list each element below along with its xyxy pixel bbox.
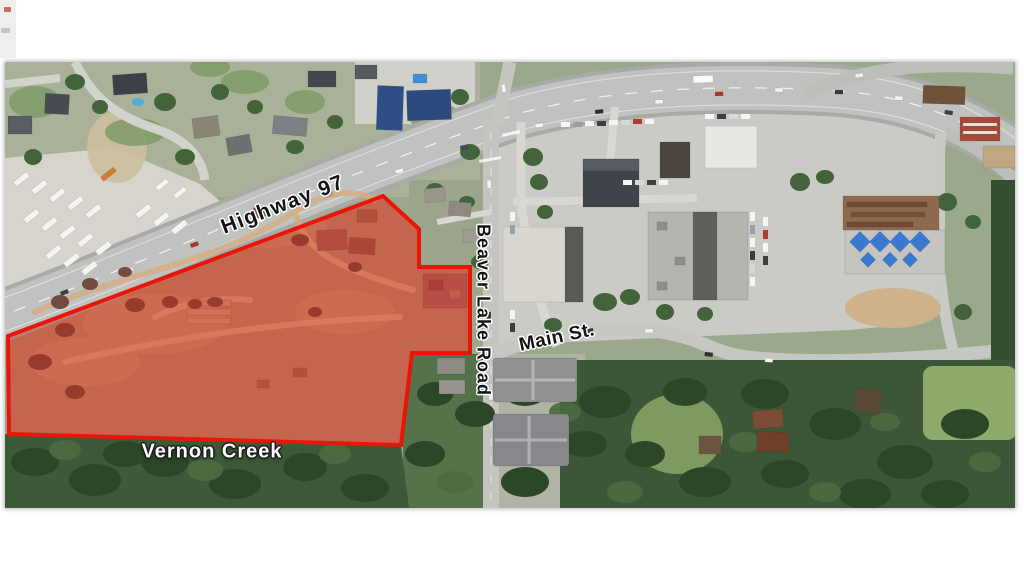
- map-art: [5, 62, 1015, 508]
- artifact-speck: [4, 7, 11, 12]
- artifact-speck: [1, 28, 10, 33]
- page: { "page": { "type": "aerial-map-figure",…: [0, 0, 1024, 576]
- satellite-map: Highway 97 Beaver Lake Road Main St. Ver…: [5, 62, 1015, 508]
- corner-image-artifact: [0, 0, 16, 58]
